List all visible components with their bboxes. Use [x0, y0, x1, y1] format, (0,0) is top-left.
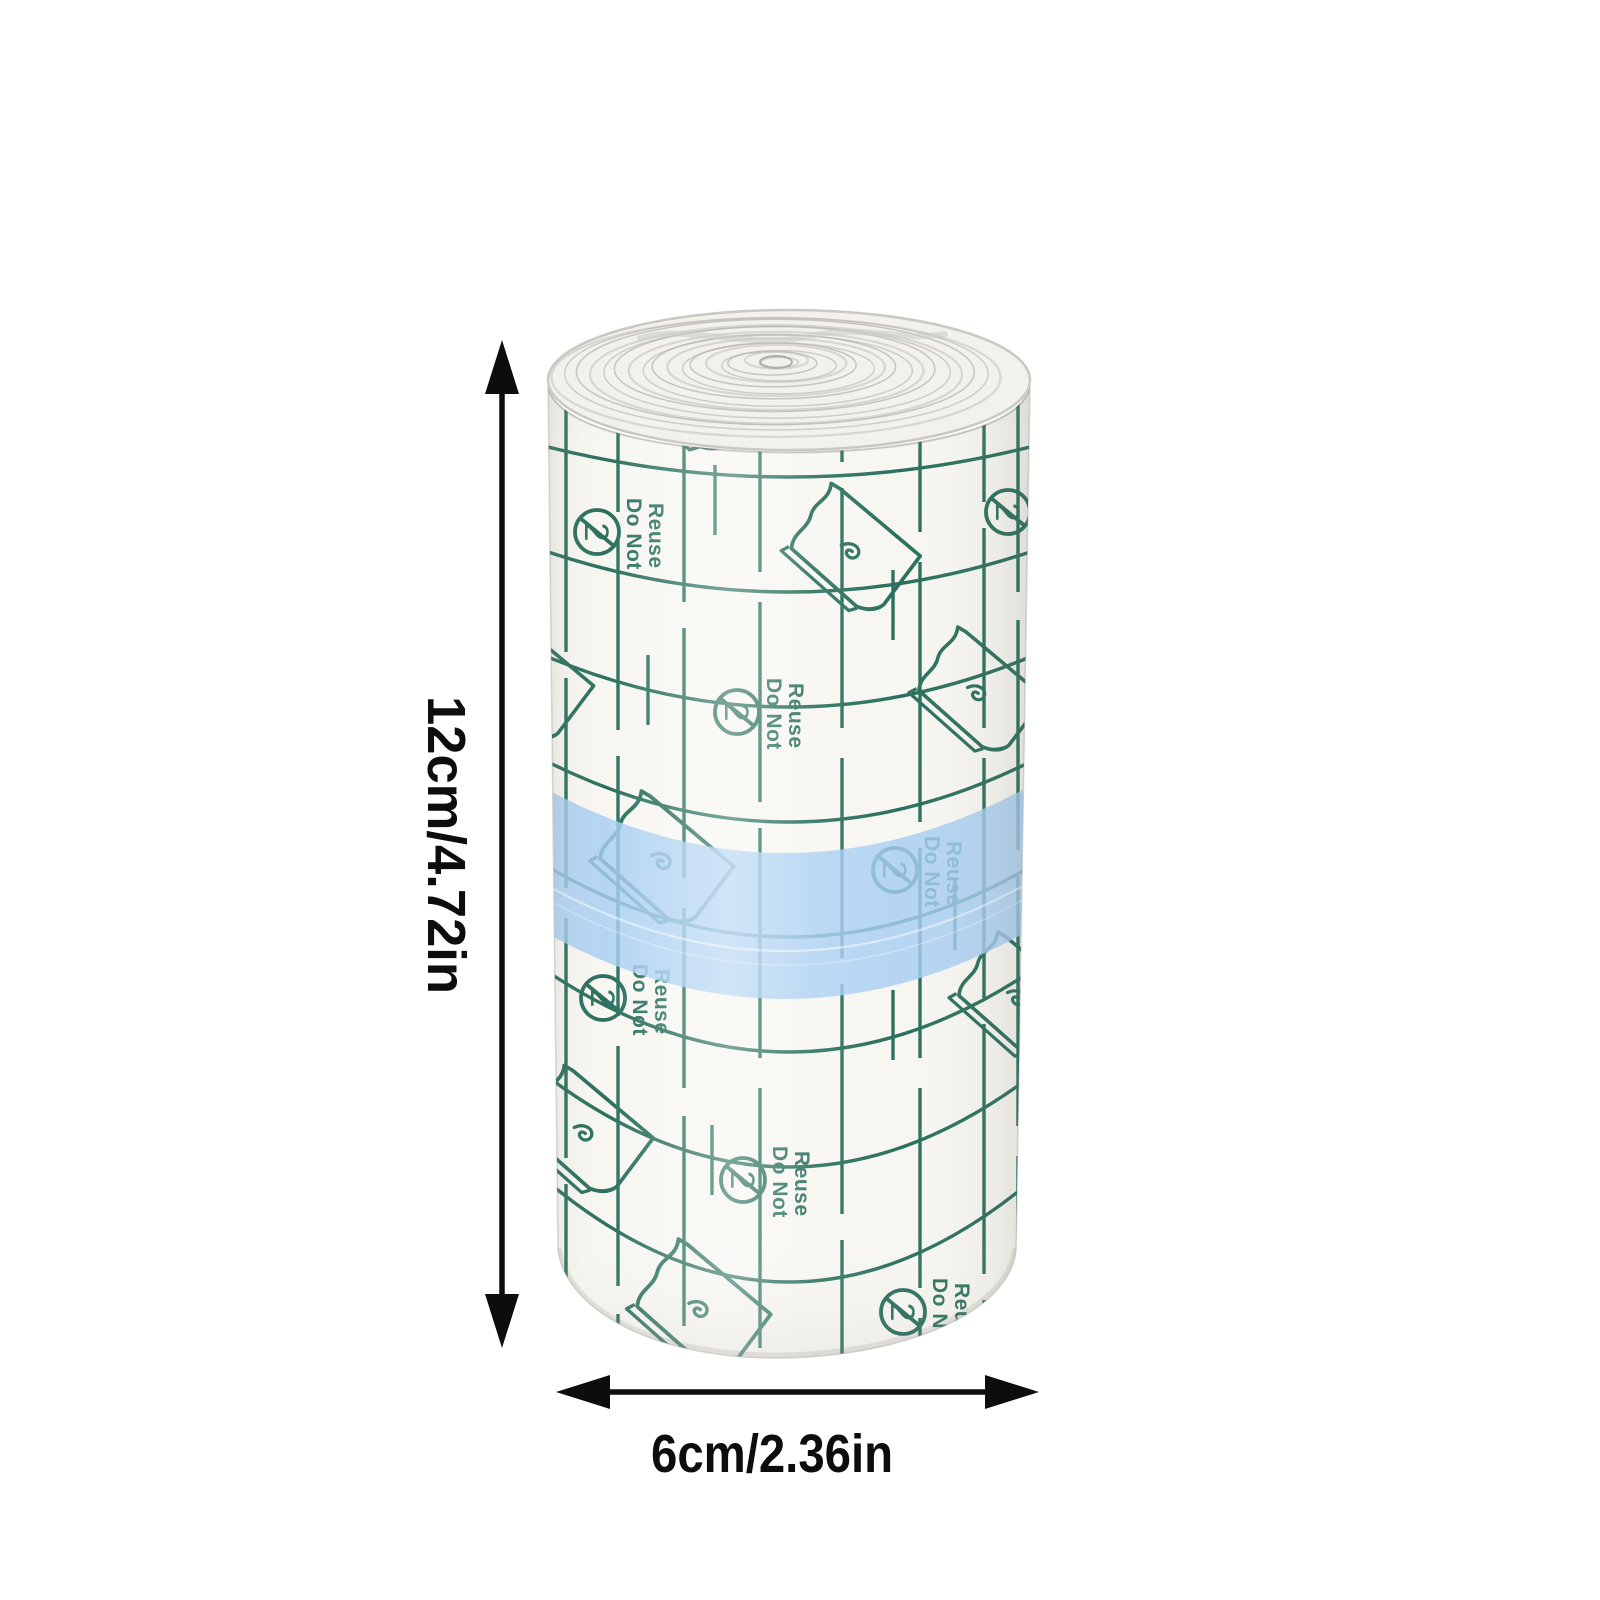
- arrow-down-head: [485, 1294, 519, 1348]
- width-dimension-label: 6cm/2.36in: [651, 1424, 893, 1484]
- product-photo: 2 Do Not Reuse: [0, 0, 1600, 1600]
- film-roll-top: [548, 310, 1030, 450]
- film-roll-image: 2 Do Not Reuse: [0, 0, 1600, 1600]
- height-annotation: 12cm/4.72in: [416, 340, 519, 1348]
- cylinder-shading: [540, 360, 1040, 1380]
- arrow-right-head: [985, 1375, 1039, 1409]
- width-annotation: 6cm/2.36in: [556, 1375, 1039, 1484]
- film-roll-body: DR: [453, 317, 1087, 1386]
- arrow-up-head: [485, 340, 519, 394]
- arrow-left-head: [556, 1375, 610, 1409]
- height-dimension-label: 12cm/4.72in: [416, 696, 476, 994]
